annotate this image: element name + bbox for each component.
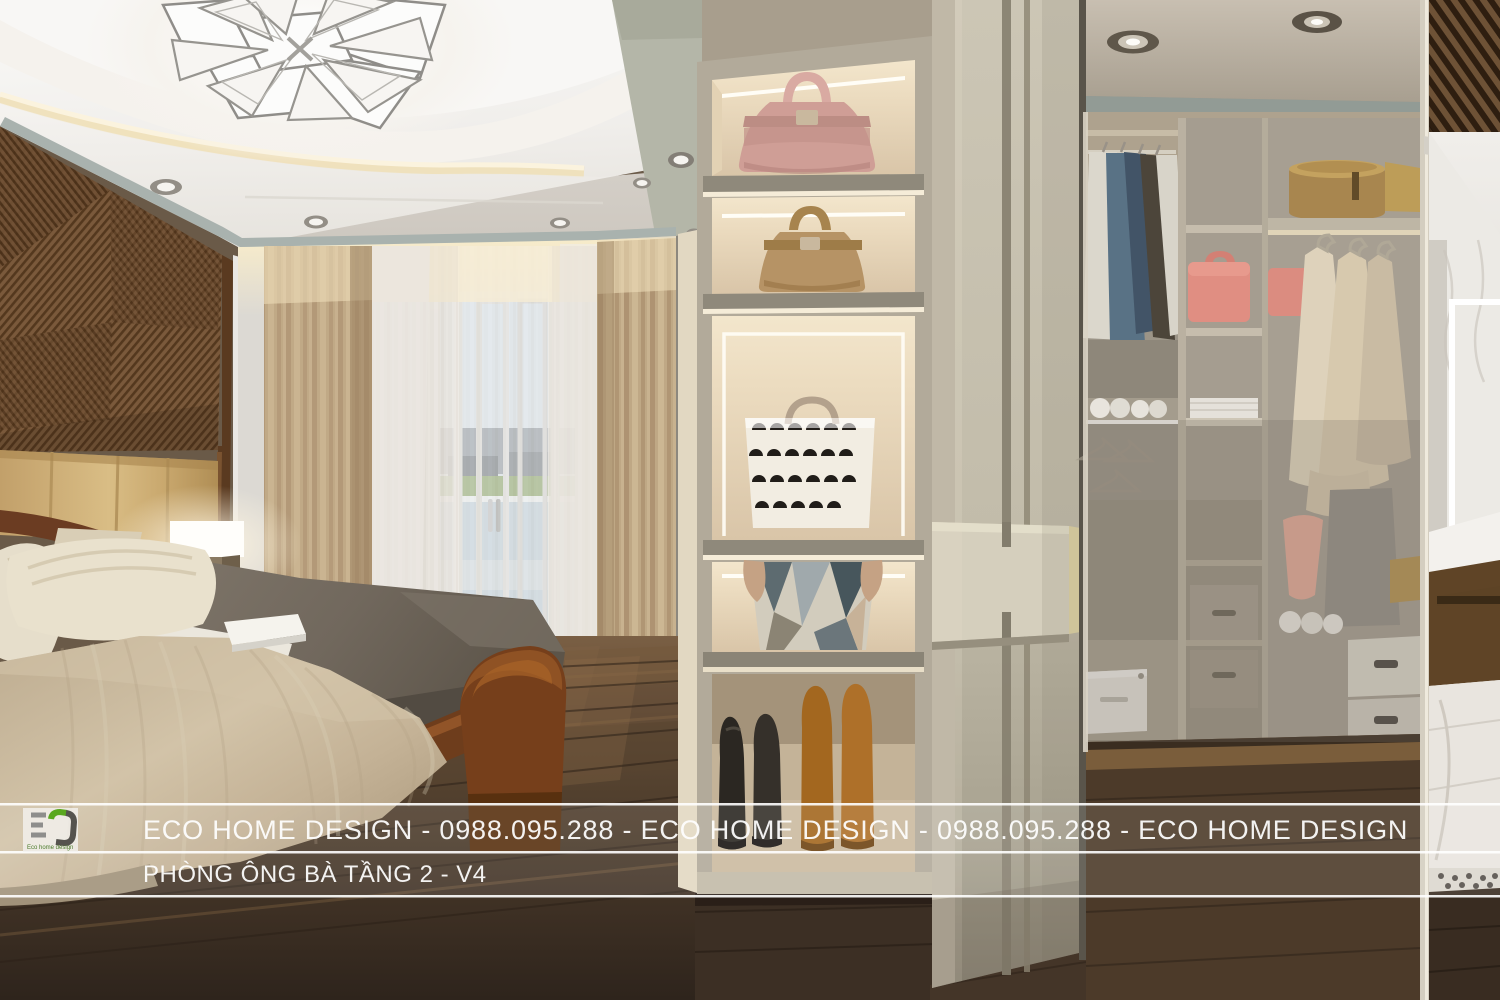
svg-text:PHÒNG ÔNG BÀ TẦNG 2 - V4: PHÒNG ÔNG BÀ TẦNG 2 - V4 bbox=[143, 860, 487, 888]
svg-text:Eco home design: Eco home design bbox=[27, 845, 73, 851]
svg-text:ECO HOME DESIGN - 0988.095.288: ECO HOME DESIGN - 0988.095.288 - ECO HOM… bbox=[143, 815, 1408, 845]
